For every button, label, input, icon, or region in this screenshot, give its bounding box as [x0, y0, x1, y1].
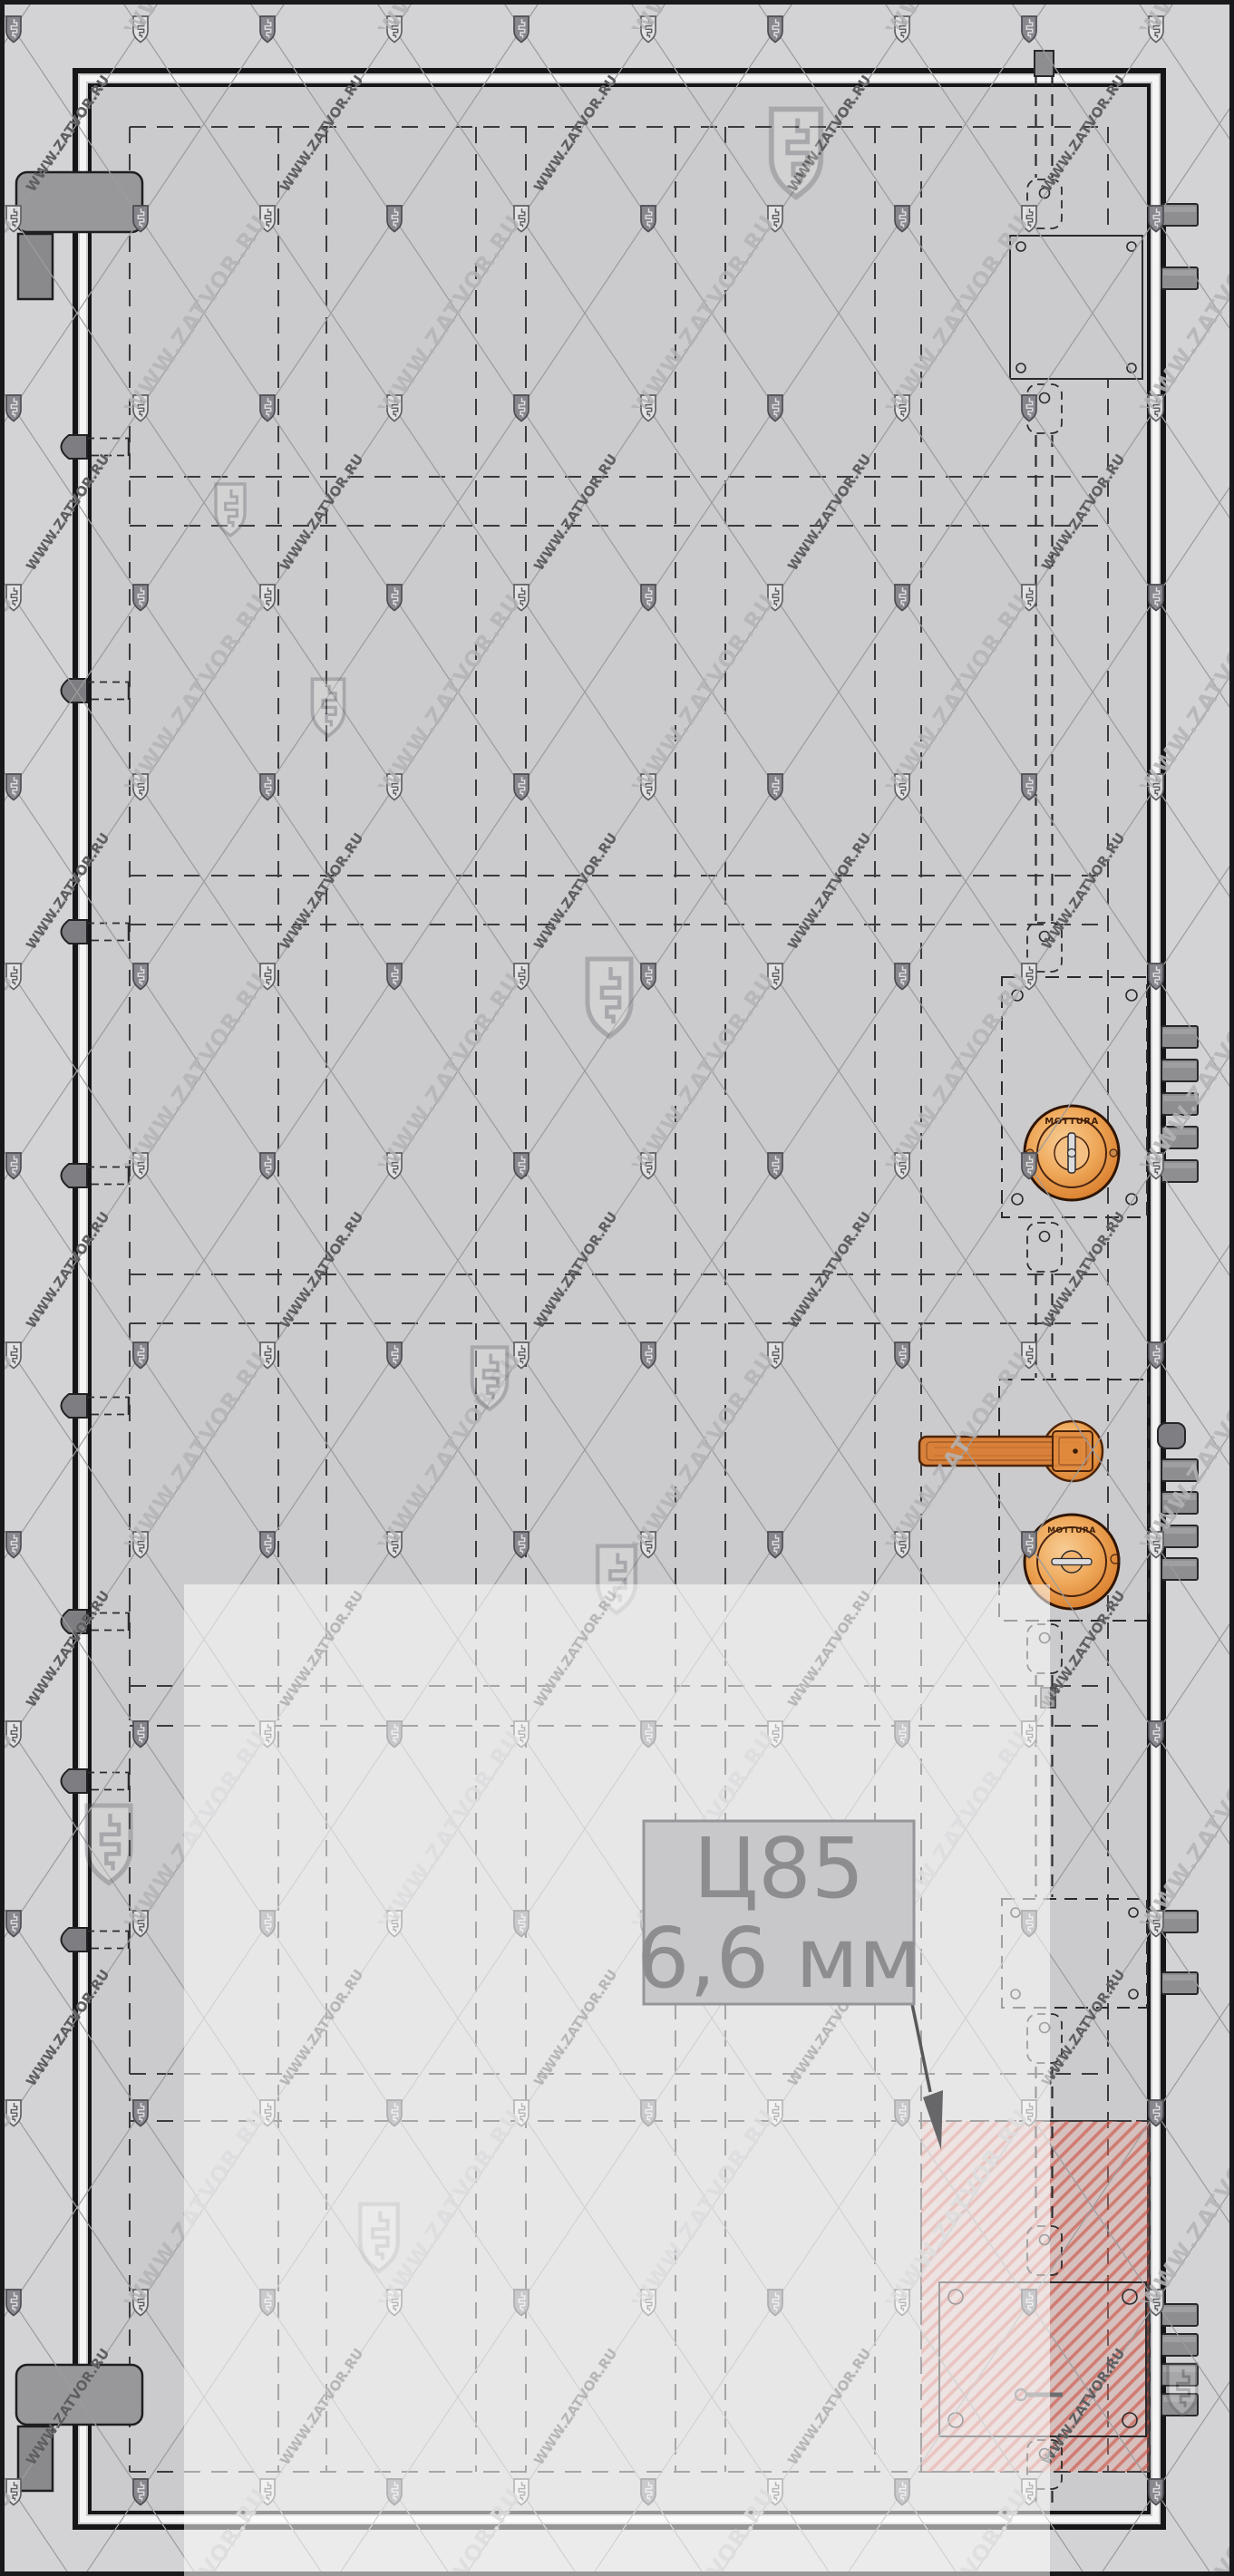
- white-overlay: [184, 1584, 1050, 2576]
- callout-line2: 6,6 мм: [636, 1910, 921, 2007]
- callout-line1: Ц85: [694, 1820, 865, 1917]
- door-technical-drawing-page: WWW.ZATVOR.RU WWW.ZATVOR.RU: [0, 0, 1234, 2576]
- door-technical-drawing: WWW.ZATVOR.RU WWW.ZATVOR.RU: [0, 0, 1234, 2576]
